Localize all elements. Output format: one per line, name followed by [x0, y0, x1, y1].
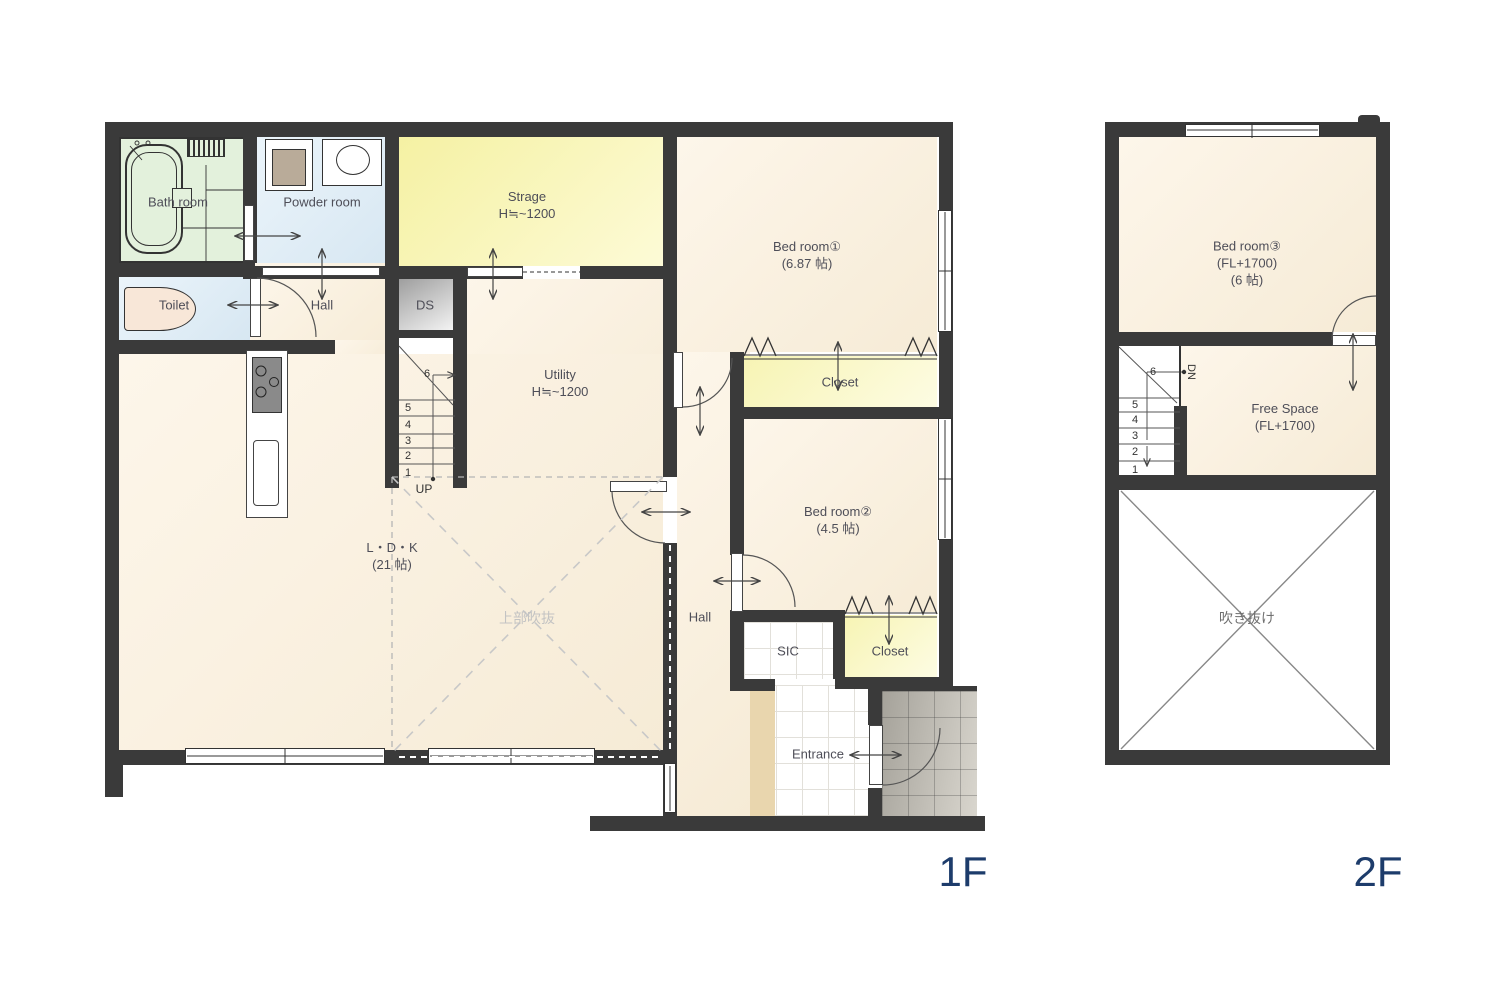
stair2-step-3: 3: [1132, 430, 1138, 442]
stair2-step-6: 6: [1150, 366, 1156, 378]
wall: [868, 685, 882, 725]
strage-name: Strage: [499, 189, 556, 206]
wall: [868, 788, 882, 816]
room-bedroom3: [1119, 137, 1376, 332]
utility-name: Utility: [532, 367, 589, 384]
stair2-step-1: 1: [1132, 464, 1138, 476]
label-ds: DS: [416, 298, 434, 315]
bedroom3-size: (6 帖): [1213, 272, 1281, 289]
door-powder-sliding[interactable]: [262, 267, 380, 276]
wall: [385, 278, 399, 488]
door-ldk[interactable]: [610, 481, 667, 492]
label-void: 吹き抜け: [1219, 609, 1275, 627]
wall: [1376, 122, 1390, 765]
wall: [453, 278, 467, 488]
label-up: UP: [416, 482, 433, 496]
wall: [399, 330, 453, 338]
floor-2f-title: 2F: [1353, 848, 1402, 896]
ldk-size: (21 帖): [366, 557, 417, 574]
wall: [1105, 122, 1119, 765]
window-bedroom2: [938, 418, 952, 540]
roof-notch: [1358, 115, 1380, 123]
wall: [385, 122, 399, 278]
window-bedroom1: [938, 210, 952, 332]
vanity-basin: [272, 149, 306, 186]
wall: [590, 816, 985, 831]
stair-step-1: 1: [405, 467, 411, 479]
door-strage-sliding[interactable]: [467, 267, 523, 277]
label-bedroom1: Bed room① (6.87 帖): [773, 239, 841, 273]
porch: [882, 691, 977, 816]
label-closet1: Closet: [822, 375, 859, 392]
door-toilet[interactable]: [250, 278, 261, 337]
freespace-fl: (FL+1700): [1251, 418, 1318, 435]
label-dn: DN: [1185, 364, 1197, 380]
door-bath-sliding[interactable]: [244, 205, 254, 261]
bedroom3-name: Bed room③: [1213, 239, 1281, 256]
stair2-step-2: 2: [1132, 446, 1138, 458]
window-hall-south: [664, 763, 676, 813]
bedroom1-size: (6.87 帖): [773, 256, 841, 273]
stair-step-5: 5: [405, 402, 411, 414]
stair2-step-5: 5: [1132, 399, 1138, 411]
label-powder: Powder room: [283, 195, 360, 212]
label-entrance: Entrance: [792, 747, 844, 764]
strage-dashed-opening: [523, 266, 580, 279]
label-atrium-note: 上部吹抜: [499, 609, 555, 627]
wall: [1105, 475, 1390, 490]
label-toilet: Toilet: [159, 298, 189, 315]
door-entrance[interactable]: [869, 725, 883, 785]
stair-step-2: 2: [405, 450, 411, 462]
label-closet2: Closet: [872, 644, 909, 661]
bedroom3-fl: (FL+1700): [1213, 256, 1281, 273]
door-bedroom3[interactable]: [1332, 335, 1376, 346]
washing-machine-drum: [336, 145, 370, 175]
stair-step-4: 4: [405, 419, 411, 431]
wall: [105, 765, 123, 797]
stair-step-6: 6: [424, 368, 430, 380]
label-bathroom: Bath room: [148, 195, 208, 212]
stair-step-3: 3: [405, 435, 411, 447]
freespace-name: Free Space: [1251, 401, 1318, 418]
wall: [730, 610, 845, 622]
window-ldk-right: [428, 748, 595, 764]
window-ldk-left: [185, 748, 385, 764]
wall: [105, 340, 335, 354]
label-utility: Utility H≒~1200: [532, 367, 589, 401]
label-ldk: L・D・K (21 帖): [366, 540, 417, 574]
wall: [730, 352, 744, 555]
kitchen-sink: [253, 440, 279, 506]
floor-1f-title: 1F: [938, 848, 987, 896]
kitchen-stove: [252, 357, 282, 413]
wall: [105, 263, 255, 277]
ldk-name: L・D・K: [366, 540, 417, 557]
utility-height: H≒~1200: [532, 384, 589, 401]
label-bedroom3: Bed room③ (FL+1700) (6 帖): [1213, 239, 1281, 290]
wall: [730, 679, 775, 691]
wall: [1174, 406, 1187, 475]
label-freespace: Free Space (FL+1700): [1251, 401, 1318, 435]
bath-grate: [187, 139, 225, 157]
label-bedroom2: Bed room② (4.5 帖): [804, 504, 872, 538]
wall: [663, 122, 677, 352]
wall: [580, 266, 663, 279]
entrance-step-strip: [750, 685, 775, 816]
label-hall-right: Hall: [689, 610, 711, 627]
label-strage: Strage H≒~1200: [499, 189, 556, 223]
window-bedroom3: [1185, 124, 1320, 137]
door-bedroom1[interactable]: [673, 352, 683, 408]
wall: [1105, 750, 1390, 765]
strage-height: H≒~1200: [499, 206, 556, 223]
bedroom2-name: Bed room②: [804, 504, 872, 521]
door-bedroom2[interactable]: [731, 553, 743, 612]
label-sic: SIC: [777, 644, 799, 661]
floorplan-canvas: Bath room Powder room Toilet Hall Strage…: [0, 0, 1500, 1000]
wall: [105, 122, 119, 797]
wall: [1105, 332, 1332, 346]
label-hall-left: Hall: [311, 298, 333, 315]
wall: [105, 122, 953, 137]
wall: [730, 407, 953, 419]
wall: [833, 615, 845, 679]
wall: [882, 686, 977, 691]
bedroom1-name: Bed room①: [773, 239, 841, 256]
bedroom2-size: (4.5 帖): [804, 521, 872, 538]
stair2-step-4: 4: [1132, 414, 1138, 426]
